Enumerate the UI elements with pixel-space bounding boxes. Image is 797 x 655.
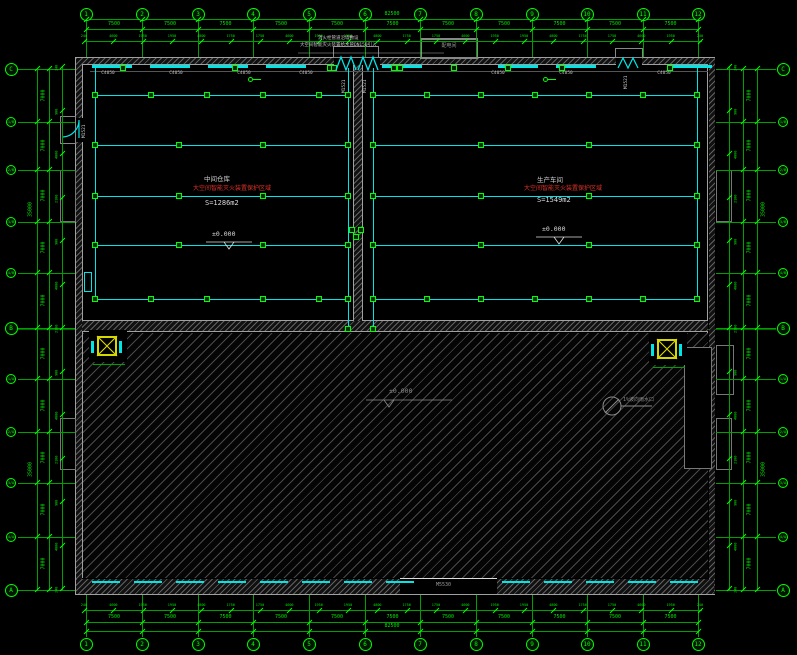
equip-flank: [679, 344, 682, 356]
grid-bubble-left: 4/B: [6, 268, 16, 278]
equip-flank: [91, 341, 94, 353]
dim-bay: 7500: [363, 22, 423, 27]
pipe-node: [586, 296, 592, 302]
room-area-left: S=1286m2: [205, 200, 239, 207]
dim-bay: 7000: [42, 323, 47, 383]
equip-flank: [651, 344, 654, 356]
grid-bubble-bottom: 11: [637, 638, 650, 651]
pipe-node: [260, 242, 266, 248]
window-label: C4050: [214, 72, 274, 77]
pipe-dash: [586, 581, 614, 583]
equip-box-left: [97, 336, 117, 356]
grid-bubble-left: 3/B: [6, 217, 16, 227]
general-note-line2: 大空间智能灭火装置给水管DN150引入: [300, 44, 377, 49]
dim-detail: 240: [734, 560, 738, 620]
pipe-dash: [260, 581, 288, 583]
pipe: [373, 68, 374, 299]
dim-bay: 7000: [748, 166, 753, 226]
grid-bubble-left: 3/A: [6, 478, 16, 488]
door-opening-top-center: [334, 58, 380, 65]
room-name-right: 生产车间: [537, 177, 563, 184]
pipe: [95, 196, 348, 197]
pipe: [697, 68, 698, 299]
pipe-node: [478, 242, 484, 248]
grid-bubble-left: 4/A: [6, 532, 16, 542]
pipe-dash: [502, 581, 530, 583]
pipe: [373, 299, 374, 329]
grid-bubble-bottom: 4: [247, 638, 260, 651]
equip-box-right: [657, 339, 677, 359]
grid-bubble-left: 1/A: [6, 374, 16, 384]
general-note-line1: 消火栓管道沿墙敷设: [318, 37, 359, 42]
pipe-node: [176, 142, 182, 148]
grid-bubble-right: A: [777, 584, 790, 597]
pipe-node: [667, 65, 673, 71]
equip-dim: [653, 367, 685, 368]
pipe-node: [120, 65, 126, 71]
pipe: [373, 145, 697, 146]
grid-bubble-right: 2/A: [778, 427, 788, 437]
dim-bay: 7000: [748, 533, 753, 593]
grid-bubble-bottom: 1: [80, 638, 93, 651]
pipe-node: [345, 193, 351, 199]
grid-bubble-bottom: 8: [470, 638, 483, 651]
grid-bubble-bottom: 7: [414, 638, 427, 651]
window-segment: [266, 65, 306, 68]
axis-stem: [716, 328, 776, 329]
pipe-node: [232, 65, 238, 71]
axis-stem: [698, 21, 699, 57]
dim-bay: 7000: [42, 217, 47, 277]
dim-bay: 7000: [748, 375, 753, 435]
pipe: [348, 299, 349, 329]
dim-bay: 7000: [748, 217, 753, 277]
dim-overall: 35000: [29, 440, 34, 500]
window-segment: [498, 65, 538, 68]
pipe: [373, 196, 697, 197]
dim-detail: 240: [670, 604, 730, 608]
dim-bay: 7000: [748, 323, 753, 383]
grid-bubble-right: B: [777, 322, 790, 335]
pipe-node: [694, 193, 700, 199]
axis-stem: [716, 69, 776, 70]
pipe: [95, 299, 348, 300]
grid-bubble-bottom: 2: [136, 638, 149, 651]
window-segment: [672, 65, 712, 68]
room-area-right: S=1549m2: [537, 197, 571, 204]
dim-bay: 7500: [474, 615, 534, 620]
pipe-node: [260, 193, 266, 199]
pipe-node: [92, 92, 98, 98]
dim-bay: 7500: [363, 615, 423, 620]
annex-room-label: 配电间: [424, 44, 474, 49]
pipe-node: [694, 296, 700, 302]
pipe-node: [331, 65, 337, 71]
pipe-node: [532, 296, 538, 302]
pipe-node: [586, 242, 592, 248]
pipe-dash: [628, 581, 656, 583]
mid-wall: [82, 320, 708, 332]
door-label: M1521: [343, 56, 348, 116]
dim-bay: 7500: [530, 22, 590, 27]
dim-overall: 35000: [762, 440, 767, 500]
pipe-dash: [302, 581, 330, 583]
pipe: [95, 68, 96, 299]
pipe-node: [370, 142, 376, 148]
axis-stem: [716, 483, 776, 484]
valve-stem: [253, 79, 261, 80]
axis-stem: [716, 273, 776, 274]
pipe-dash: [134, 581, 162, 583]
room-elevation-left: ±0.000: [212, 231, 235, 238]
pipe-node: [586, 193, 592, 199]
pipe-node: [370, 326, 376, 332]
yard-slope-note: 1%坡向雨水口: [623, 398, 654, 403]
dim-line: [84, 610, 702, 611]
grid-bubble-right: 1/B: [778, 117, 788, 127]
yard-ramp: [684, 347, 712, 469]
door-label: M1521: [364, 56, 369, 116]
dim-detail: 240: [670, 35, 730, 39]
dim-bay: 7500: [140, 22, 200, 27]
grid-bubble-left: 1/B: [6, 117, 16, 127]
dim-bay: 7500: [585, 615, 645, 620]
window-segment: [92, 65, 132, 68]
grid-bubble-right: 3/A: [778, 478, 788, 488]
pipe-node: [397, 65, 403, 71]
dim-bay: 7500: [641, 615, 701, 620]
dim-bay: 7000: [42, 533, 47, 593]
pipe-node: [353, 234, 359, 240]
axis-stem: [716, 170, 776, 171]
dim-bay: 7500: [641, 22, 701, 27]
pipe-dash: [176, 581, 204, 583]
dim-bay: 7500: [530, 615, 590, 620]
dim-bay: 7500: [418, 22, 478, 27]
dim-bay: 7500: [307, 615, 367, 620]
pipe-node: [370, 193, 376, 199]
yard-elevation: ±0.000: [389, 388, 412, 395]
pipe-node: [316, 92, 322, 98]
axis-stem: [716, 537, 776, 538]
dim-bay: 7000: [42, 480, 47, 540]
pipe-node: [345, 242, 351, 248]
pipe-node: [370, 92, 376, 98]
grid-bubble-left: 2/B: [6, 165, 16, 175]
grid-bubble-bottom: 12: [692, 638, 705, 651]
dim-bay: 7000: [748, 427, 753, 487]
pipe-node: [559, 65, 565, 71]
pipe-node: [148, 92, 154, 98]
window-segment: [208, 65, 248, 68]
grid-bubble-right: 4/A: [778, 532, 788, 542]
window-label: C4050: [78, 72, 138, 77]
pipe-node: [260, 296, 266, 302]
dim-bay: 7500: [84, 615, 144, 620]
pipe-node: [260, 142, 266, 148]
pipe-node: [694, 92, 700, 98]
pipe-node: [345, 326, 351, 332]
pipe-node: [358, 227, 364, 233]
pipe-dash: [670, 581, 698, 583]
center-wall: [353, 64, 363, 321]
pipe: [95, 145, 348, 146]
axis-stem: [716, 222, 776, 223]
grid-bubble-right: 1/A: [778, 374, 788, 384]
pipe-node: [92, 242, 98, 248]
yard-hatch: [83, 333, 708, 578]
window-segment: [150, 65, 190, 68]
pipe-node: [92, 193, 98, 199]
dim-bay: 7500: [474, 22, 534, 27]
dim-bay: 7000: [42, 166, 47, 226]
pipe-node: [204, 296, 210, 302]
pipe: [95, 95, 348, 96]
pipe-node: [370, 242, 376, 248]
pipe-node: [316, 296, 322, 302]
dim-bay: 7500: [251, 615, 311, 620]
pipe-node: [586, 142, 592, 148]
dim-bay: 7000: [42, 427, 47, 487]
pipe-node: [370, 296, 376, 302]
axis-stem: [716, 122, 776, 123]
dim-line: [86, 631, 698, 632]
hose-cabinet: [84, 272, 92, 292]
pipe-node: [451, 65, 457, 71]
axis-stem: [716, 432, 776, 433]
pipe: [348, 68, 349, 299]
pipe: [373, 245, 697, 246]
pipe-node: [478, 296, 484, 302]
room-note-right: 大空间智能灭火装置保护区域: [524, 186, 602, 192]
pipe-node: [505, 65, 511, 71]
equip-flank: [119, 341, 122, 353]
pipe-node: [424, 92, 430, 98]
dim-bay: 7000: [42, 375, 47, 435]
door-lintel-bottom: [400, 578, 497, 579]
pipe-node: [176, 242, 182, 248]
grid-bubble-bottom: 10: [581, 638, 594, 651]
room-note-left: 大空间智能灭火装置保护区域: [193, 186, 271, 192]
pipe-node: [148, 296, 154, 302]
dim-bay: 7500: [196, 615, 256, 620]
pipe-node: [260, 92, 266, 98]
window-label: C4050: [276, 72, 336, 77]
dim-bay: 7500: [585, 22, 645, 27]
dim-bay: 7500: [140, 615, 200, 620]
grid-bubble-left: A: [5, 584, 18, 597]
dim-bay: 7000: [748, 270, 753, 330]
pipe-node: [478, 92, 484, 98]
pipe-node: [92, 296, 98, 302]
window-label: C4050: [634, 72, 694, 77]
dim-bay: 7000: [42, 270, 47, 330]
pipe-dash: [218, 581, 246, 583]
pipe-node: [345, 142, 351, 148]
grid-bubble-left: 2/A: [6, 427, 16, 437]
room-elevation-right: ±0.000: [542, 226, 565, 233]
dim-bay: 7500: [251, 22, 311, 27]
dim-bay: 7500: [418, 615, 478, 620]
grid-bubble-right: 2/B: [778, 165, 788, 175]
dim-line: [757, 69, 758, 590]
pipe-node: [640, 92, 646, 98]
dim-line: [743, 69, 744, 590]
pipe-node: [478, 193, 484, 199]
dim-bay: 7500: [196, 22, 256, 27]
grid-bubble-bottom: 5: [303, 638, 316, 651]
grid-bubble-right: 3/B: [778, 217, 788, 227]
pipe-node: [92, 142, 98, 148]
pipe-node: [694, 242, 700, 248]
window-label: C4050: [468, 72, 528, 77]
grid-bubble-bottom: 6: [359, 638, 372, 651]
cad-floor-plan: C4050C4050C4050C4050C4050C4050C4050M1521…: [0, 0, 797, 655]
pipe-node: [176, 193, 182, 199]
dim-line: [37, 69, 38, 590]
pipe-node: [424, 296, 430, 302]
bottom-door-label: M5530: [436, 583, 451, 588]
pipe-node: [532, 92, 538, 98]
door-label: M1521: [83, 101, 88, 161]
pipe-node: [345, 92, 351, 98]
dim-line: [86, 29, 698, 30]
valve-stem: [548, 79, 556, 80]
pipe-node: [586, 92, 592, 98]
window-label: C4050: [536, 72, 596, 77]
grid-bubble-right: C: [777, 63, 790, 76]
dim-overall: 35000: [762, 180, 767, 240]
dim-line: [86, 19, 698, 20]
window-label: C4050: [146, 72, 206, 77]
dim-bay: 7500: [307, 22, 367, 27]
dim-line: [84, 41, 702, 42]
grid-bubble-bottom: 3: [192, 638, 205, 651]
grid-bubble-left: B: [5, 322, 18, 335]
pipe-node: [640, 296, 646, 302]
pipe: [95, 245, 348, 246]
equip-dim: [93, 364, 125, 365]
pipe-dash: [344, 581, 372, 583]
pipe-node: [349, 227, 355, 233]
pipe-dash: [92, 581, 120, 583]
pipe-dash: [544, 581, 572, 583]
grid-bubble-right: 4/B: [778, 268, 788, 278]
dim-overall: 82500: [362, 624, 422, 629]
wall-hatch-right: [709, 58, 715, 594]
pipe-node: [478, 142, 484, 148]
dim-overall: 35000: [29, 180, 34, 240]
dim-line: [49, 69, 50, 590]
grid-bubble-left: C: [5, 63, 18, 76]
pipe-dash: [386, 581, 414, 583]
grid-bubble-bottom: 9: [526, 638, 539, 651]
pipe-node: [694, 142, 700, 148]
axis-stem: [716, 379, 776, 380]
pipe-node: [345, 296, 351, 302]
pipe-node: [204, 92, 210, 98]
dim-bay: 7500: [84, 22, 144, 27]
room-name-left: 中间仓库: [204, 176, 230, 183]
door-label: M1521: [625, 52, 630, 112]
axis-stem: [716, 590, 776, 591]
dim-detail: 240: [55, 560, 59, 620]
dim-bay: 7000: [748, 480, 753, 540]
